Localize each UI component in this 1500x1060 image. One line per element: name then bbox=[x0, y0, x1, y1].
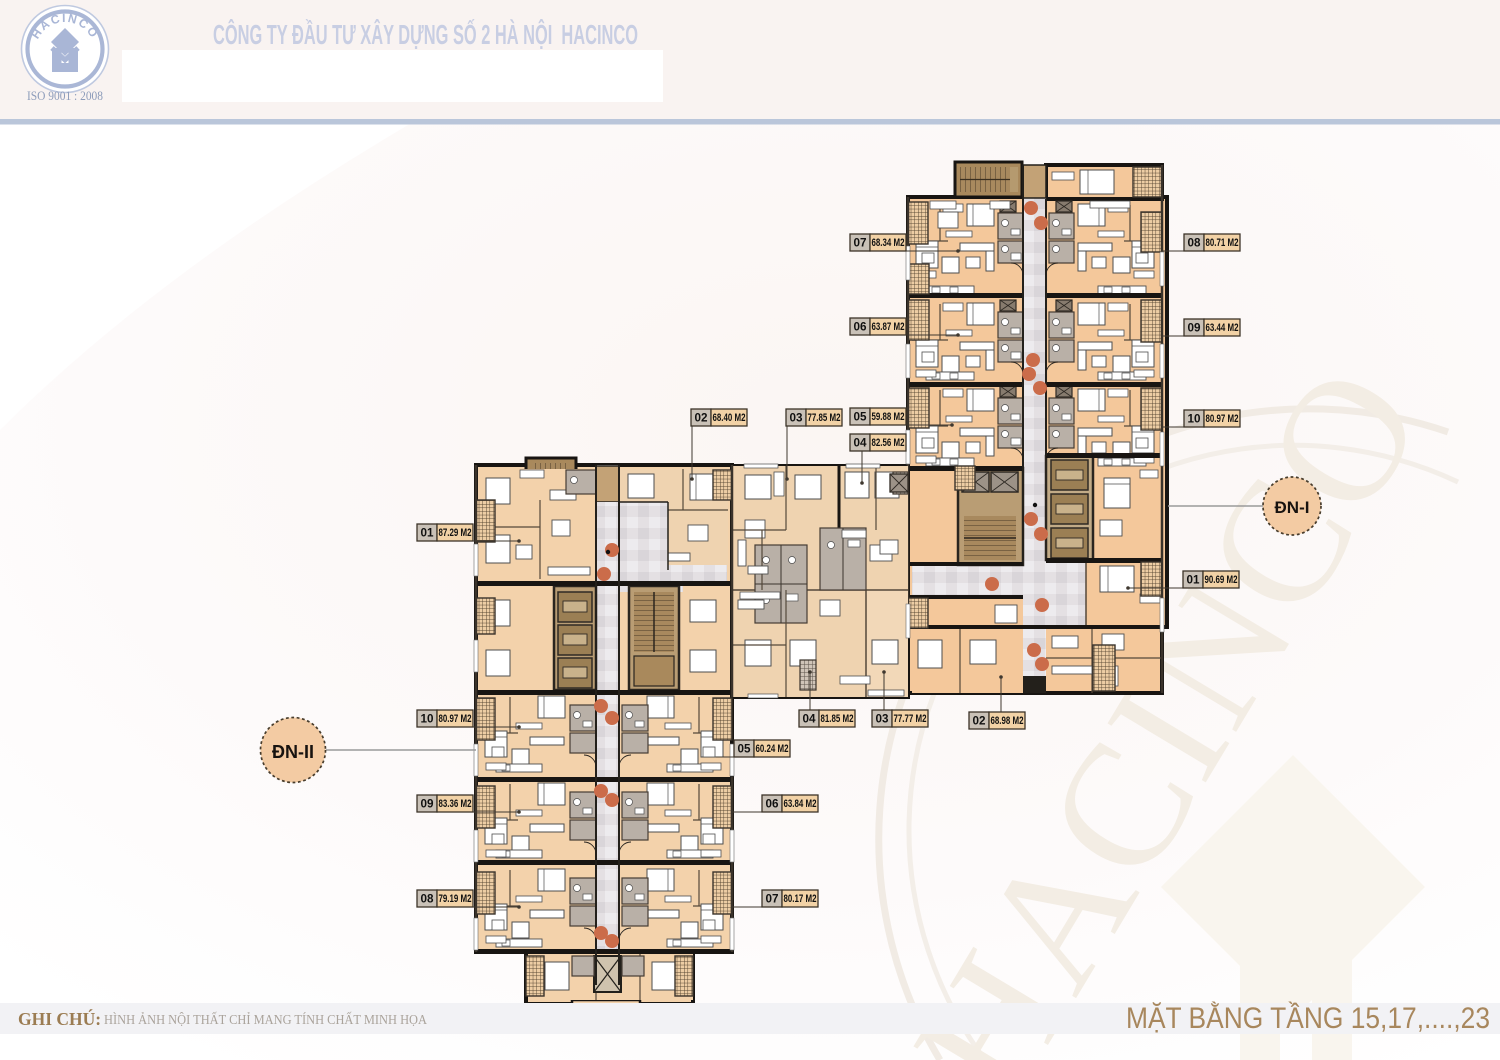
svg-text:80.71 M2: 80.71 M2 bbox=[1206, 237, 1239, 249]
svg-text:63.84 M2: 63.84 M2 bbox=[784, 798, 817, 810]
svg-text:MẶT BẰNG TẦNG 15,17,....,23: MẶT BẰNG TẦNG 15,17,....,23 bbox=[1126, 1001, 1490, 1035]
svg-text:07: 07 bbox=[854, 238, 867, 250]
svg-text:04: 04 bbox=[854, 438, 868, 450]
svg-text:04: 04 bbox=[803, 714, 817, 726]
svg-text:05: 05 bbox=[738, 744, 752, 756]
svg-text:80.97 M2: 80.97 M2 bbox=[439, 713, 472, 725]
svg-text:ISO 9001 : 2008: ISO 9001 : 2008 bbox=[27, 89, 103, 103]
svg-text:80.17 M2: 80.17 M2 bbox=[784, 893, 817, 905]
svg-text:68.98 M2: 68.98 M2 bbox=[991, 715, 1024, 727]
svg-text:90.69 M2: 90.69 M2 bbox=[1205, 574, 1238, 586]
svg-text:10: 10 bbox=[1188, 414, 1201, 426]
svg-text:59.88 M2: 59.88 M2 bbox=[872, 411, 905, 423]
svg-text:02: 02 bbox=[695, 413, 708, 425]
svg-text:08: 08 bbox=[1188, 238, 1202, 250]
svg-text:63.87 M2: 63.87 M2 bbox=[872, 321, 905, 333]
svg-text:05: 05 bbox=[854, 412, 868, 424]
svg-text:83.36 M2: 83.36 M2 bbox=[439, 798, 472, 810]
svg-text:01: 01 bbox=[1187, 575, 1201, 587]
svg-text:80.97 M2: 80.97 M2 bbox=[1206, 413, 1239, 425]
svg-text:07: 07 bbox=[766, 894, 779, 906]
svg-text:79.19 M2: 79.19 M2 bbox=[439, 893, 472, 905]
svg-text:77.85 M2: 77.85 M2 bbox=[808, 412, 841, 424]
svg-text:01: 01 bbox=[421, 528, 435, 540]
svg-text:68.40 M2: 68.40 M2 bbox=[713, 412, 746, 424]
svg-text:03: 03 bbox=[790, 413, 803, 425]
svg-text:03: 03 bbox=[876, 714, 889, 726]
svg-text:CÔNG TY ĐẦU TƯ XÂY DỰNG SỐ 2 H: CÔNG TY ĐẦU TƯ XÂY DỰNG SỐ 2 HÀ NỘI HACI… bbox=[213, 18, 638, 50]
svg-text:ĐN-II: ĐN-II bbox=[272, 742, 314, 762]
svg-text:87.29 M2: 87.29 M2 bbox=[439, 527, 472, 539]
svg-text:68.34 M2: 68.34 M2 bbox=[872, 237, 905, 249]
svg-text:HÌNH ẢNH NỘI THẤT CHỈ MANG TÍN: HÌNH ẢNH NỘI THẤT CHỈ MANG TÍNH CHẤT MIN… bbox=[104, 1011, 428, 1028]
svg-text:82.56 M2: 82.56 M2 bbox=[872, 437, 905, 449]
svg-text:ĐN-I: ĐN-I bbox=[1275, 498, 1310, 517]
svg-text:06: 06 bbox=[854, 322, 867, 334]
svg-text:06: 06 bbox=[766, 799, 779, 811]
svg-text:09: 09 bbox=[1188, 323, 1201, 335]
svg-text:GHI CHÚ:: GHI CHÚ: bbox=[18, 1009, 101, 1029]
svg-text:81.85 M2: 81.85 M2 bbox=[821, 713, 854, 725]
svg-text:77.77 M2: 77.77 M2 bbox=[894, 713, 927, 725]
svg-text:09: 09 bbox=[421, 799, 434, 811]
svg-text:60.24 M2: 60.24 M2 bbox=[756, 743, 789, 755]
svg-text:08: 08 bbox=[421, 894, 435, 906]
svg-text:63.44 M2: 63.44 M2 bbox=[1206, 322, 1239, 334]
svg-text:02: 02 bbox=[973, 716, 986, 728]
svg-text:10: 10 bbox=[421, 714, 434, 726]
